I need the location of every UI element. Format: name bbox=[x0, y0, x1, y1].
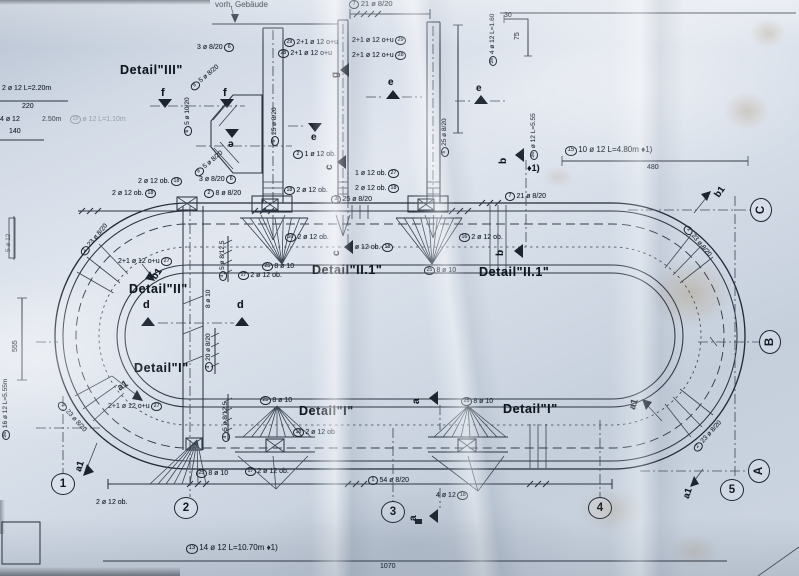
ring-outlines bbox=[55, 203, 745, 469]
generated-hatching bbox=[79, 11, 549, 491]
misc-lines bbox=[2, 216, 799, 576]
section-markers bbox=[83, 63, 711, 523]
axis-lines bbox=[36, 196, 760, 502]
drawing-geometry bbox=[0, 0, 799, 576]
dimension-lines bbox=[0, 9, 796, 561]
drawing-photo: vorh. Gebäude721 ø 8/203075284 ø 12 L=1.… bbox=[0, 0, 799, 576]
building-walls bbox=[196, 6, 440, 203]
